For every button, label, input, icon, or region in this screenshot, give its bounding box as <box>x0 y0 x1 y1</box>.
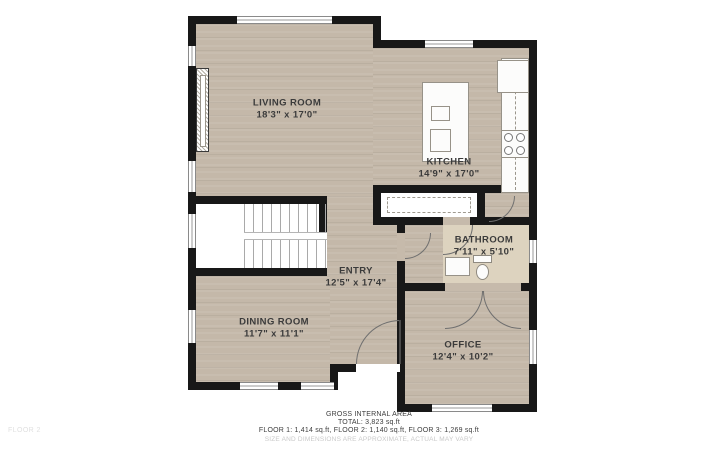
bathroom-door-opening <box>443 217 470 225</box>
room-dimensions: 18'3" x 17'0" <box>253 110 321 122</box>
stair-landing <box>244 232 327 240</box>
stair-treads-upper <box>244 204 327 232</box>
room-name: DINING ROOM <box>239 317 309 329</box>
window <box>529 330 537 364</box>
stove-burner <box>516 133 525 142</box>
stove-burner <box>516 146 525 155</box>
summary-title: GROSS INTERNAL AREA <box>219 411 519 419</box>
window <box>188 310 196 343</box>
room-label-entry: ENTRY 12'5" x 17'4" <box>326 266 387 291</box>
front-door-opening <box>356 364 400 372</box>
refrigerator <box>497 60 529 93</box>
window <box>301 382 334 390</box>
summary-total: TOTAL: 3,823 sq.ft <box>219 419 519 427</box>
room-name: ENTRY <box>326 266 387 278</box>
fireplace-insert <box>200 75 206 147</box>
stove-burner <box>504 146 513 155</box>
island-dishwasher <box>430 129 451 152</box>
summary-disclaimer: SIZE AND DIMENSIONS ARE APPROXIMATE, ACT… <box>219 436 519 444</box>
floor-plan: LIVING ROOM 18'3" x 17'0" KITCHEN 14'9" … <box>0 0 720 449</box>
room-label-office: OFFICE 12'4" x 10'2" <box>433 340 494 365</box>
room-dimensions: 7'11" x 5'10" <box>454 247 514 259</box>
stair-treads-lower <box>244 240 327 268</box>
room-dimensions: 11'7" x 11'1" <box>239 329 309 341</box>
room-dimensions: 12'5" x 17'4" <box>326 278 387 290</box>
entry-closet-shelf <box>387 197 471 213</box>
hall-door-opening <box>397 233 405 261</box>
bathroom-sink <box>445 257 470 276</box>
summary-floors: FLOOR 1: 1,414 sq.ft, FLOOR 2: 1,140 sq.… <box>219 427 519 435</box>
room-name: KITCHEN <box>419 157 480 169</box>
room-name: BATHROOM <box>454 235 514 247</box>
room-name: OFFICE <box>433 340 494 352</box>
window <box>188 214 196 248</box>
front-door-leaf <box>399 320 401 364</box>
toilet-bowl <box>476 264 489 280</box>
floor-watermark: FLOOR 2 <box>8 427 41 434</box>
room-name: LIVING ROOM <box>253 98 321 110</box>
room-label-dining: DINING ROOM 11'7" x 11'1" <box>239 317 309 342</box>
room-dimensions: 12'4" x 10'2" <box>433 352 494 364</box>
window <box>237 16 332 24</box>
fireplace <box>196 68 209 152</box>
stove-burner <box>504 133 513 142</box>
wall-stairs-bottom <box>196 268 327 276</box>
island-sink <box>431 106 450 121</box>
window <box>188 161 196 192</box>
room-dimensions: 14'9" x 17'0" <box>419 169 480 181</box>
area-summary: GROSS INTERNAL AREA TOTAL: 3,823 sq.ft F… <box>219 411 519 444</box>
room-label-bathroom: BATHROOM 7'11" x 5'10" <box>454 235 514 260</box>
wall-hall-column <box>373 185 381 225</box>
room-label-kitchen: KITCHEN 14'9" x 17'0" <box>419 157 480 182</box>
window <box>188 46 196 66</box>
room-label-living: LIVING ROOM 18'3" x 17'0" <box>253 98 321 123</box>
wall-stairs-top <box>196 196 327 204</box>
window <box>240 382 278 390</box>
window <box>425 40 473 48</box>
window <box>529 240 537 263</box>
office-door-opening <box>445 283 521 291</box>
